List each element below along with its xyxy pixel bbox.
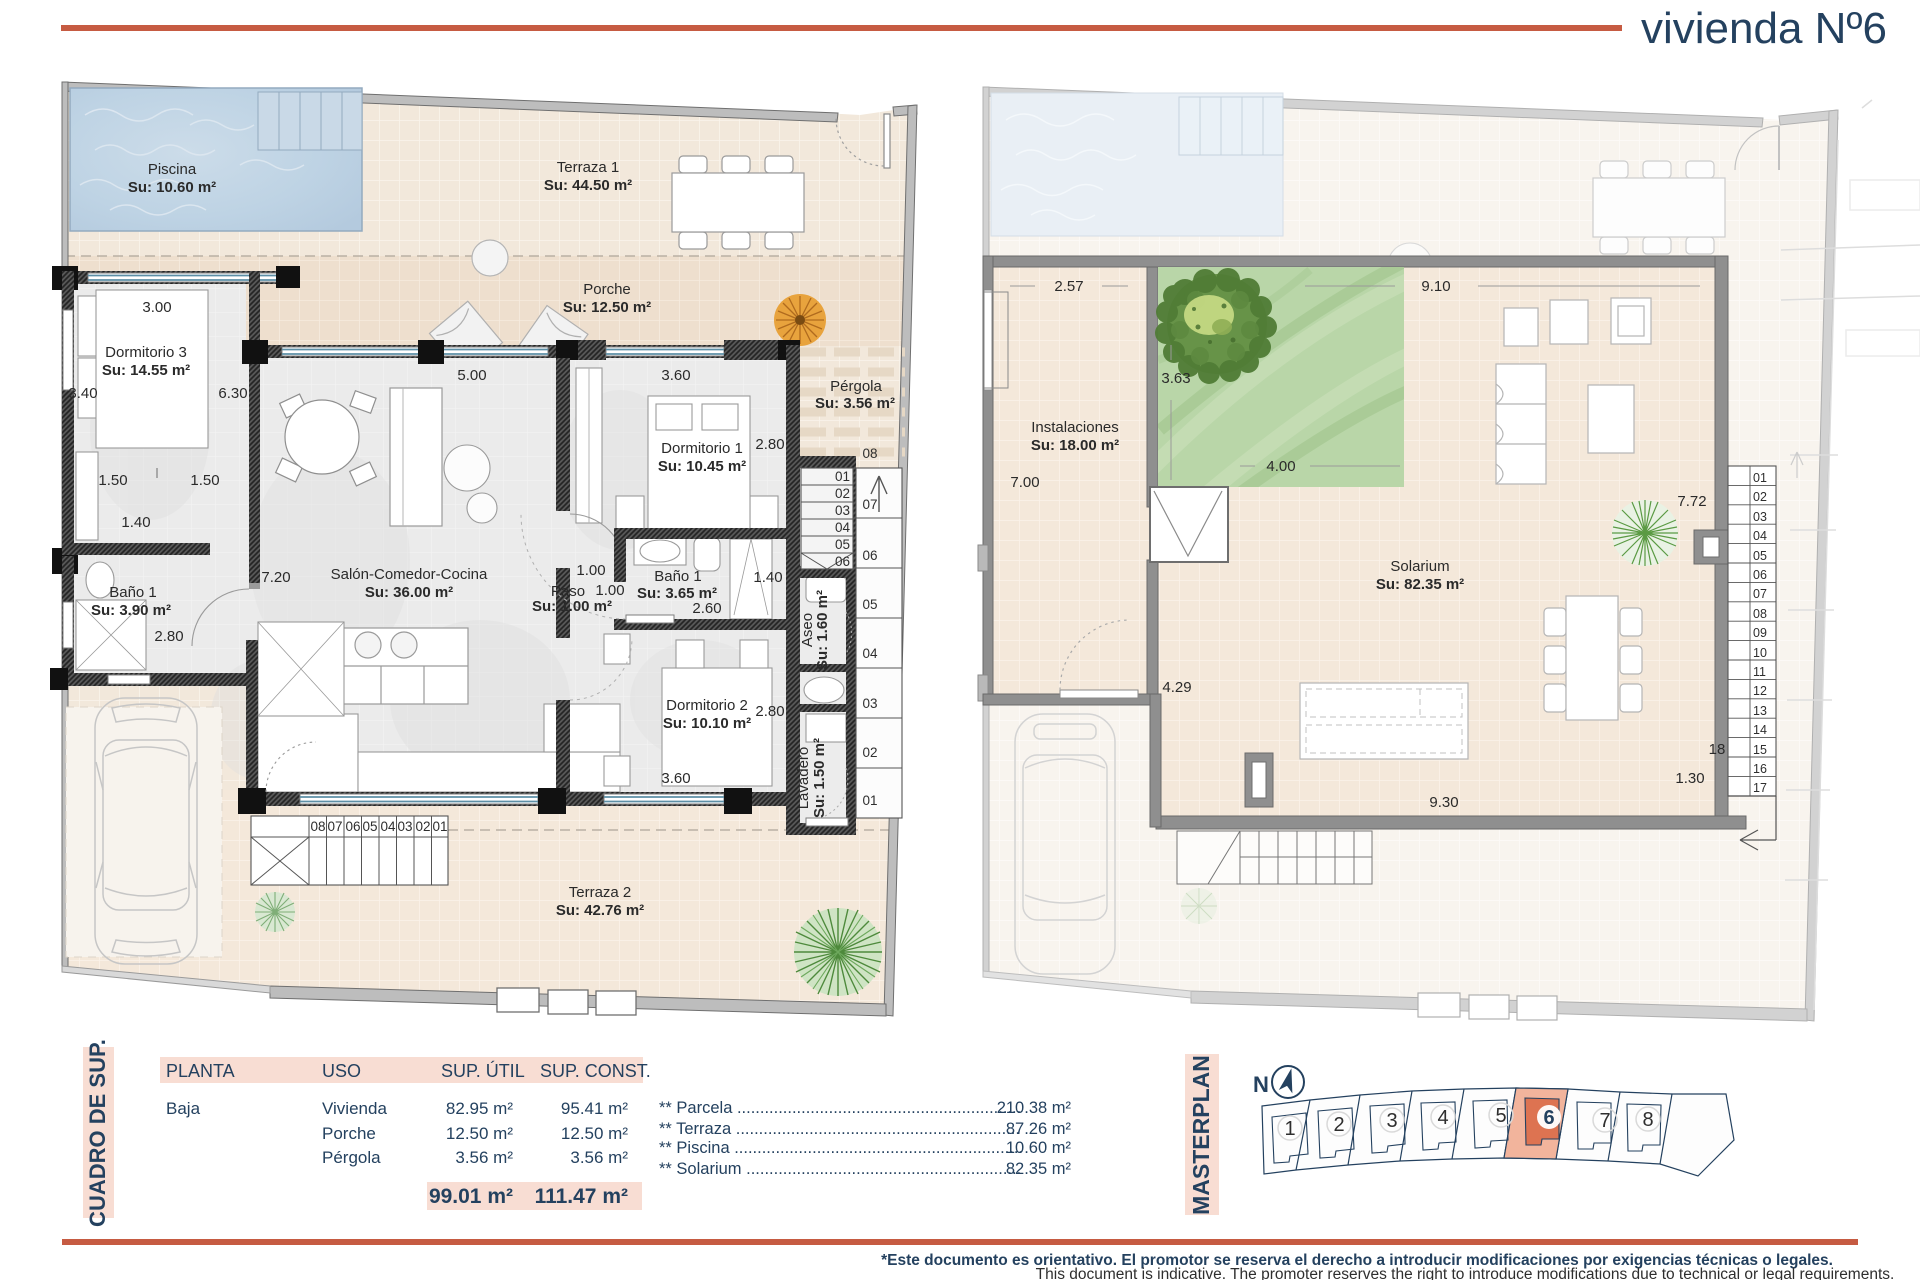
svg-text:vivienda Nº6: vivienda Nº6 <box>1641 4 1887 53</box>
svg-text:Dormitorio 2: Dormitorio 2 <box>666 697 748 714</box>
svg-text:03: 03 <box>1753 510 1767 524</box>
svg-text:Instalaciones: Instalaciones <box>1031 419 1119 436</box>
svg-text:3.63: 3.63 <box>1161 370 1190 387</box>
svg-text:11: 11 <box>1753 665 1766 679</box>
svg-text:15: 15 <box>1753 743 1767 757</box>
svg-text:12.50 m²: 12.50 m² <box>561 1124 628 1143</box>
svg-text:This document is indicative. T: This document is indicative. The promote… <box>1036 1266 1895 1280</box>
svg-text:6: 6 <box>1543 1107 1554 1129</box>
svg-text:08: 08 <box>862 446 877 461</box>
svg-text:4: 4 <box>1437 1107 1448 1129</box>
svg-text:Su: 3.90 m²: Su: 3.90 m² <box>91 602 171 619</box>
svg-text:01: 01 <box>835 469 850 484</box>
svg-text:12: 12 <box>1753 684 1767 698</box>
svg-text:MASTERPLAN: MASTERPLAN <box>1188 1055 1214 1215</box>
svg-text:7.20: 7.20 <box>261 569 290 586</box>
svg-text:06: 06 <box>862 548 877 563</box>
svg-text:111.47 m²: 111.47 m² <box>535 1185 628 1208</box>
svg-text:02: 02 <box>415 819 430 834</box>
svg-text:02: 02 <box>1753 490 1767 504</box>
svg-text:SUP. ÚTIL: SUP. ÚTIL <box>441 1060 525 1081</box>
svg-text:Su: 3.56 m²: Su: 3.56 m² <box>815 395 895 412</box>
svg-text:3: 3 <box>1386 1110 1397 1132</box>
svg-text:82.95 m²: 82.95 m² <box>446 1099 513 1118</box>
svg-text:99.01 m²: 99.01 m² <box>429 1185 513 1208</box>
svg-text:01: 01 <box>1753 471 1767 485</box>
svg-text:Su: 10.45 m²: Su: 10.45 m² <box>658 458 746 475</box>
svg-text:SUP. CONST.: SUP. CONST. <box>540 1061 651 1081</box>
svg-text:13: 13 <box>1753 704 1767 718</box>
svg-text:9.10: 9.10 <box>1421 278 1450 295</box>
svg-text:Su: 82.35 m²: Su: 82.35 m² <box>1376 576 1464 593</box>
svg-text:Su: 1.60 m²: Su: 1.60 m² <box>814 590 831 670</box>
svg-text:9.30: 9.30 <box>1429 794 1458 811</box>
svg-text:3.60: 3.60 <box>661 367 690 384</box>
svg-text:82.35 m²: 82.35 m² <box>1006 1160 1072 1178</box>
svg-text:02: 02 <box>835 486 850 501</box>
svg-text:Vivienda: Vivienda <box>322 1099 387 1118</box>
svg-text:05: 05 <box>362 819 377 834</box>
svg-text:16: 16 <box>1753 762 1767 776</box>
svg-text:07: 07 <box>862 497 877 512</box>
svg-text:12.50 m²: 12.50 m² <box>446 1124 513 1143</box>
svg-text:3.40: 3.40 <box>68 385 97 402</box>
svg-text:Baño 1: Baño 1 <box>109 584 157 601</box>
svg-text:1.50: 1.50 <box>190 472 219 489</box>
svg-text:Porche: Porche <box>322 1124 376 1143</box>
svg-text:10.60 m²: 10.60 m² <box>1006 1139 1072 1157</box>
svg-text:01: 01 <box>862 793 877 808</box>
svg-text:7.00: 7.00 <box>1010 474 1039 491</box>
svg-text:09: 09 <box>1753 626 1767 640</box>
svg-text:3.60: 3.60 <box>661 770 690 787</box>
svg-text:14: 14 <box>1753 723 1767 737</box>
svg-text:Porche: Porche <box>583 281 631 298</box>
svg-text:07: 07 <box>327 819 342 834</box>
svg-text:2.60: 2.60 <box>692 600 721 617</box>
svg-text:04: 04 <box>1753 529 1767 543</box>
svg-text:Su: 12.50 m²: Su: 12.50 m² <box>563 299 651 316</box>
svg-text:1.00: 1.00 <box>576 562 605 579</box>
svg-text:Solarium: Solarium <box>1390 558 1449 575</box>
svg-text:4.00: 4.00 <box>1266 458 1295 475</box>
svg-text:08: 08 <box>310 819 325 834</box>
svg-text:2.80: 2.80 <box>755 703 784 720</box>
svg-text:8: 8 <box>1642 1109 1653 1131</box>
svg-text:Pérgola: Pérgola <box>322 1148 381 1167</box>
svg-text:05: 05 <box>862 597 877 612</box>
svg-text:02: 02 <box>862 745 877 760</box>
svg-text:Su: 44.50 m²: Su: 44.50 m² <box>544 177 632 194</box>
svg-text:05: 05 <box>835 537 850 552</box>
svg-text:210.38 m²: 210.38 m² <box>997 1099 1072 1117</box>
svg-text:7.72: 7.72 <box>1677 493 1706 510</box>
svg-text:3.56 m²: 3.56 m² <box>455 1148 513 1167</box>
svg-text:03: 03 <box>835 503 850 518</box>
svg-text:1.00: 1.00 <box>595 582 624 599</box>
svg-text:Su: 10.60 m²: Su: 10.60 m² <box>128 179 216 196</box>
svg-text:87.26 m²: 87.26 m² <box>1006 1120 1072 1138</box>
svg-text:2.80: 2.80 <box>755 436 784 453</box>
svg-text:04: 04 <box>835 520 851 535</box>
svg-text:06: 06 <box>835 554 850 569</box>
svg-text:N: N <box>1253 1072 1269 1097</box>
svg-text:04: 04 <box>862 646 878 661</box>
svg-text:Su: 1.50 m²: Su: 1.50 m² <box>811 738 828 818</box>
svg-text:** Terraza ...................: ** Terraza .............................… <box>659 1120 1020 1138</box>
svg-text:PLANTA: PLANTA <box>166 1061 235 1081</box>
svg-text:1: 1 <box>1284 1118 1295 1140</box>
svg-text:Lavadero: Lavadero <box>795 747 812 810</box>
svg-text:03: 03 <box>397 819 412 834</box>
svg-text:3.00: 3.00 <box>142 299 171 316</box>
svg-text:7: 7 <box>1599 1110 1610 1132</box>
svg-text:Su: 10.10 m²: Su: 10.10 m² <box>663 715 751 732</box>
svg-text:07: 07 <box>1753 587 1767 601</box>
svg-text:10: 10 <box>1753 646 1767 660</box>
svg-text:5: 5 <box>1495 1105 1506 1127</box>
svg-text:Terraza 2: Terraza 2 <box>569 884 632 901</box>
svg-text:2.80: 2.80 <box>154 628 183 645</box>
svg-text:1.40: 1.40 <box>121 514 150 531</box>
svg-text:Su: 36.00 m²: Su: 36.00 m² <box>365 584 453 601</box>
svg-text:4.29: 4.29 <box>1162 679 1191 696</box>
svg-text:Su: 42.76 m²: Su: 42.76 m² <box>556 902 644 919</box>
svg-text:18: 18 <box>1709 741 1726 758</box>
svg-text:Su: 14.55 m²: Su: 14.55 m² <box>102 362 190 379</box>
svg-text:05: 05 <box>1753 549 1767 563</box>
svg-text:06: 06 <box>1753 568 1767 582</box>
svg-text:04: 04 <box>380 819 396 834</box>
svg-text:Terraza 1: Terraza 1 <box>557 159 620 176</box>
svg-text:17: 17 <box>1753 781 1767 795</box>
svg-text:95.41 m²: 95.41 m² <box>561 1099 628 1118</box>
svg-text:2: 2 <box>1333 1114 1344 1136</box>
svg-text:2.57: 2.57 <box>1054 278 1083 295</box>
svg-text:Dormitorio 1: Dormitorio 1 <box>661 440 743 457</box>
svg-text:Baja: Baja <box>166 1099 201 1118</box>
svg-text:Pérgola: Pérgola <box>830 378 882 395</box>
svg-text:** Parcela ...................: ** Parcela .............................… <box>659 1099 1021 1117</box>
svg-text:6.30: 6.30 <box>218 385 247 402</box>
svg-text:03: 03 <box>862 696 877 711</box>
svg-text:Baño 1: Baño 1 <box>654 568 702 585</box>
svg-text:5.00: 5.00 <box>457 367 486 384</box>
svg-text:Su: 1.00 m²: Su: 1.00 m² <box>532 598 612 615</box>
svg-text:1.40: 1.40 <box>753 569 782 586</box>
svg-text:1.50: 1.50 <box>98 472 127 489</box>
svg-text:01: 01 <box>432 819 447 834</box>
svg-text:Dormitorio 3: Dormitorio 3 <box>105 344 187 361</box>
svg-text:Su: 18.00 m²: Su: 18.00 m² <box>1031 437 1119 454</box>
svg-text:CUADRO DE SUP.: CUADRO DE SUP. <box>85 1039 110 1227</box>
svg-text:1.30: 1.30 <box>1675 770 1704 787</box>
svg-text:3.56 m²: 3.56 m² <box>570 1148 628 1167</box>
svg-text:** Solarium ..................: ** Solarium ............................… <box>659 1160 1021 1178</box>
svg-text:USO: USO <box>322 1061 361 1081</box>
svg-text:** Piscina ...................: ** Piscina .............................… <box>659 1139 1023 1157</box>
svg-text:Piscina: Piscina <box>148 161 197 178</box>
svg-text:Salón-Comedor-Cocina: Salón-Comedor-Cocina <box>331 566 488 583</box>
svg-text:08: 08 <box>1753 607 1767 621</box>
svg-text:06: 06 <box>345 819 360 834</box>
